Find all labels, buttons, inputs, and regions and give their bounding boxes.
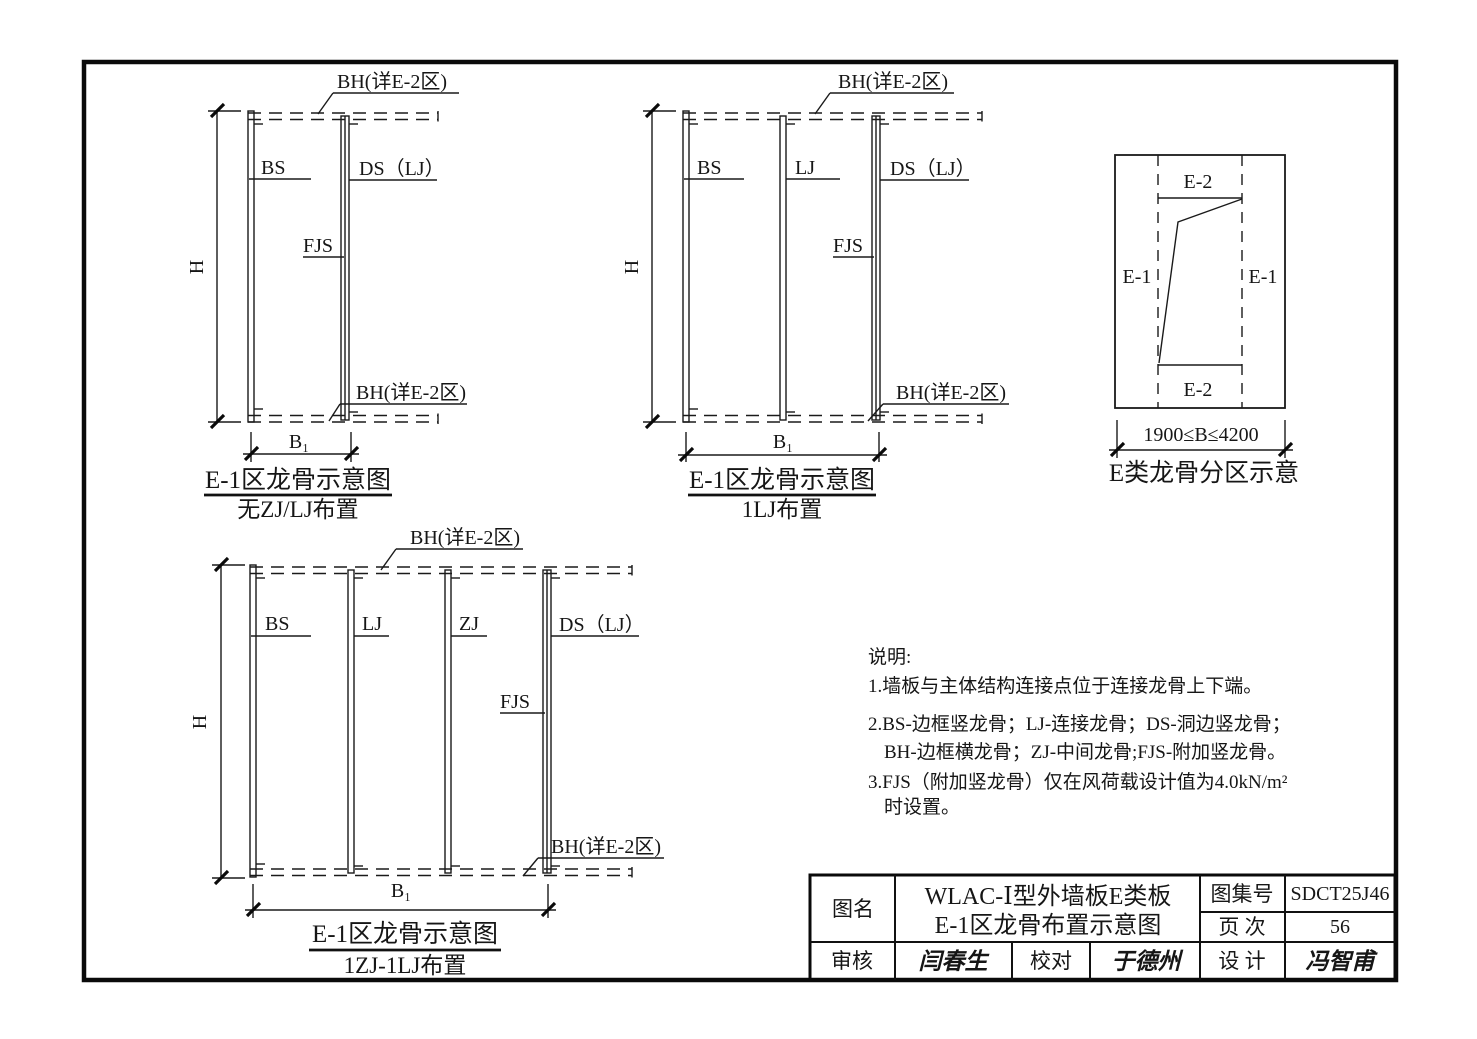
width-dim-label: B₁ [773,431,793,453]
atlas-number-label: 图集号 [1211,882,1274,906]
notes-line-5: 时设置。 [884,796,960,818]
bh-bottom-label: BH(详E-2区) [896,381,1006,404]
bh-top-label: BH(详E-2区) [838,70,948,93]
diagram-subtitle: 1ZJ-1LJ布置 [344,953,467,978]
notes-heading: 说明: [868,646,911,668]
height-dim-label: H [189,715,211,729]
design-label: 设 计 [1218,949,1265,973]
atlas-number-value: SDCT25J46 [1291,883,1390,905]
zj-stud-label: ZJ [459,613,479,635]
notes-line-4: 3.FJS（附加竖龙骨）仅在风荷载设计值为4.0kN/m² [868,771,1288,793]
notes-line-1: 1.墙板与主体结构连接点位于连接龙骨上下端。 [868,675,1262,697]
page-number-value: 56 [1330,916,1350,938]
drawing-name-label: 图名 [832,897,874,921]
diagram-1-linework [204,93,467,495]
diagram-subtitle: 1LJ布置 [742,497,823,522]
drawing-canvas: BH(详E-2区) H BS DS（LJ） FJS BH(详E-2区) B₁ E… [0,0,1477,1039]
design-signature: 冯智甫 [1306,949,1379,975]
bs-stud-label: BS [697,157,721,179]
bh-top-label: BH(详E-2区) [410,526,520,549]
zone-diagram-linework [1109,155,1293,458]
ds-stud-label: DS（LJ） [359,157,445,180]
lj-stud-label: LJ [362,613,382,635]
bs-stud-label: BS [261,157,285,179]
diagram-title: E-1区龙骨示意图 [689,466,875,494]
notes-line-2: 2.BS-边框竖龙骨；LJ-连接龙骨；DS-洞边竖龙骨； [868,713,1291,735]
review-signature: 闫春生 [919,949,990,975]
diagram-3-linework [212,549,664,950]
diagram-title: E-1区龙骨示意图 [205,466,391,494]
drawing-sheet: BH(详E-2区) H BS DS（LJ） FJS BH(详E-2区) B₁ E… [0,0,1477,1039]
notes-line-3: BH-边框横龙骨；ZJ-中间龙骨;FJS-附加竖龙骨。 [884,741,1286,763]
diagram-title: E-1区龙骨示意图 [312,920,498,948]
height-dim-label: H [621,260,643,274]
zone-width-dim-label: 1900≤B≤4200 [1143,424,1258,446]
page-number-label: 页 次 [1218,915,1265,939]
zone-e1-left-label: E-1 [1123,266,1152,288]
notes-block: 说明: 1.墙板与主体结构连接点位于连接龙骨上下端。 2.BS-边框竖龙骨；LJ… [868,646,1291,818]
diagram-2-linework [643,93,1009,495]
width-dim-label: B₁ [289,431,309,453]
ds-stud-label: DS（LJ） [890,157,976,180]
bs-stud-label: BS [265,613,289,635]
drawing-name-line1: WLAC-Ⅰ型外墙板E类板 [925,883,1172,910]
lj-stud-label: LJ [795,157,815,179]
review-label: 审核 [831,949,873,973]
ds-stud-label: DS（LJ） [559,613,645,636]
check-label: 校对 [1030,949,1072,973]
zone-diagram-title: E类龙骨分区示意 [1109,459,1299,487]
bh-bottom-label: BH(详E-2区) [356,381,466,404]
drawing-name-line2: E-1区龙骨布置示意图 [935,912,1162,939]
zone-e2-top-label: E-2 [1184,171,1213,193]
fjs-stud-label: FJS [833,235,863,257]
zone-diagram-labels: E-2 E-1 E-1 E-2 1900≤B≤4200 E类龙骨分区示意 [1109,171,1299,487]
fjs-stud-label: FJS [303,235,333,257]
diagram-2-labels: BH(详E-2区) H BS LJ DS（LJ） FJS BH(详E-2区) B… [621,70,1006,522]
title-block: 图名 WLAC-Ⅰ型外墙板E类板 E-1区龙骨布置示意图 图集号 SDCT25J… [810,875,1395,980]
diagram-subtitle: 无ZJ/LJ布置 [237,497,358,522]
bh-bottom-label: BH(详E-2区) [551,835,661,858]
zone-e1-right-label: E-1 [1249,266,1278,288]
zone-e2-bottom-label: E-2 [1184,379,1213,401]
bh-top-label: BH(详E-2区) [337,70,447,93]
height-dim-label: H [186,260,208,274]
fjs-stud-label: FJS [500,691,530,713]
check-signature: 于德州 [1112,949,1184,975]
width-dim-label: B₁ [391,880,411,902]
